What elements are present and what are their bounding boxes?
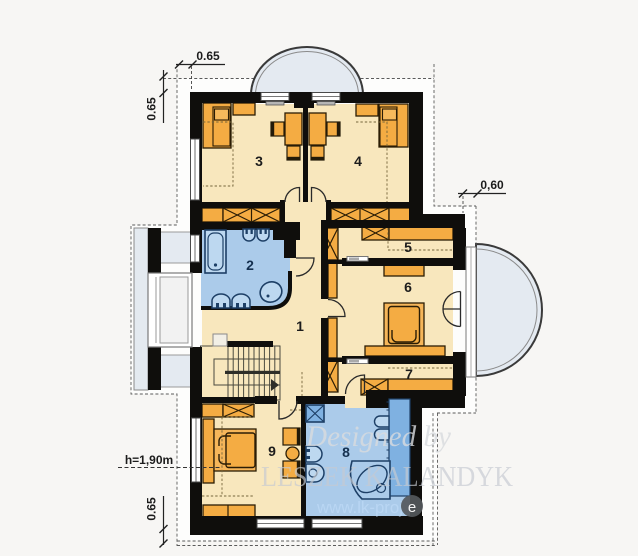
svg-text:9: 9 — [268, 443, 276, 459]
svg-text:www.lk-proj: www.lk-proj — [316, 498, 403, 517]
svg-text:6: 6 — [404, 279, 412, 295]
svg-text:5: 5 — [404, 239, 412, 255]
svg-text:7: 7 — [405, 366, 413, 382]
svg-text:LESZEK KALANDYK: LESZEK KALANDYK — [261, 461, 513, 493]
svg-text:2: 2 — [246, 257, 254, 273]
svg-text:e: e — [408, 499, 416, 516]
svg-text:0.65: 0.65 — [196, 49, 220, 63]
svg-text:3: 3 — [255, 153, 263, 169]
svg-text:0,60: 0,60 — [480, 178, 504, 192]
svg-text:0.65: 0.65 — [145, 497, 159, 521]
svg-text:4: 4 — [354, 153, 362, 169]
svg-text:0.65: 0.65 — [145, 97, 159, 121]
svg-text:h=1,90m: h=1,90m — [125, 453, 173, 467]
svg-text:1: 1 — [296, 318, 304, 334]
svg-text:Designed by: Designed by — [305, 420, 452, 453]
